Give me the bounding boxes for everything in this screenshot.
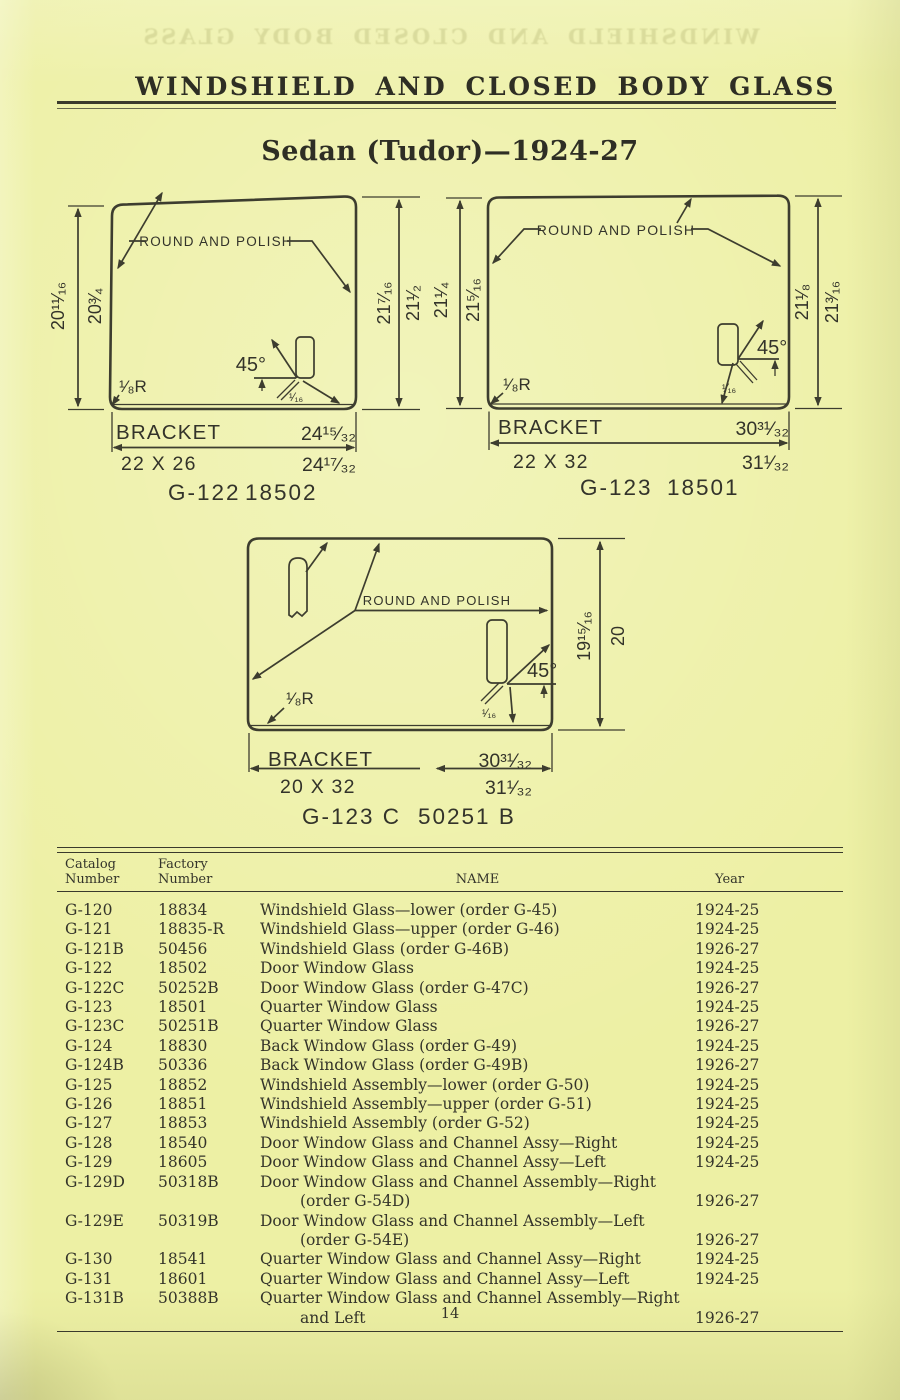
table-row: G-12718853Windshield Assembly (order G-5…: [65, 1114, 843, 1133]
cell-catalog-number: G-129: [65, 1153, 158, 1172]
cell-name: Door Window Glass and Channel Assembly—L…: [260, 1212, 695, 1231]
cell-name: (order G-54D): [260, 1192, 695, 1211]
cell-catalog-number: G-120: [65, 901, 158, 920]
bracket-label: BRACKET: [268, 748, 373, 771]
table-row: G-12218502Door Window Glass1924-25: [65, 959, 843, 978]
cell-year: 1924-25: [695, 1134, 843, 1153]
edge-thickness-label: ¹⁄₁₆: [289, 392, 304, 404]
cell-factory-number: 50318B: [158, 1173, 260, 1192]
table-row: G-122C50252BDoor Window Glass (order G-4…: [65, 979, 843, 998]
bracket-width: 30³¹⁄₃₂: [736, 418, 789, 440]
diagram-quarter-window-g123: 21¹⁄₄ 21⁵⁄₁₆ 21¹⁄₈ 21³⁄₁₆ ROUND AND POLI…: [431, 196, 842, 500]
cell-year: 1924-25: [695, 998, 843, 1017]
bracket-label: BRACKET: [498, 416, 603, 439]
corner-radius-label: ¹⁄₈R: [119, 377, 147, 396]
dim-right-outer: 21¹⁄₂: [403, 285, 423, 321]
round-polish-label: ROUND AND POLISH: [363, 593, 512, 608]
cell-catalog-number: G-121: [65, 920, 158, 939]
cell-name: Quarter Window Glass: [260, 998, 695, 1017]
table-row: G-12018834Windshield Glass—lower (order …: [65, 901, 843, 920]
page-number: 14: [0, 1306, 900, 1322]
cell-name: Windshield Glass—lower (order G-45): [260, 901, 695, 920]
scanned-catalog-page: WINDSHIELD AND CLOSED BODY GLASS WINDSHI…: [0, 0, 900, 1400]
glass-outline: [110, 197, 356, 409]
caption-catalog-number: G-123 C: [302, 804, 401, 829]
cell-name: Door Window Glass: [260, 959, 695, 978]
cell-name: Windshield Glass—upper (order G-46): [260, 920, 695, 939]
dim-right-inner: 21⁷⁄₁₆: [374, 282, 394, 325]
glass-size: 20 X 32: [280, 776, 356, 798]
cell-factory-number: 18601: [158, 1270, 260, 1289]
glass-diagrams-figure: 20¹¹⁄₁₆ 20³⁄₄ 21⁷⁄₁₆ 21¹⁄₂ ROUND AND POL…: [0, 185, 900, 835]
table-row: G-123C50251BQuarter Window Glass1926-27: [65, 1017, 843, 1036]
cell-year: 1924-25: [695, 1270, 843, 1289]
angle-label: 45°: [236, 354, 266, 376]
dim-left-inner: 20³⁄₄: [85, 288, 105, 324]
column-header-factory-number: Factory Number: [158, 858, 260, 887]
cell-catalog-number: G-124: [65, 1037, 158, 1056]
bracket-profile-large: [289, 558, 307, 617]
table-row: G-12318501Quarter Window Glass1924-25: [65, 998, 843, 1017]
caption-catalog-number: G-123: [580, 475, 653, 500]
dim-left-outer: 20¹¹⁄₁₆: [48, 282, 68, 330]
edge-thickness-label: ¹⁄₁₆: [482, 708, 497, 720]
cell-catalog-number: [65, 1231, 158, 1250]
section-title: Sedan (Tudor)—1924-27: [0, 136, 900, 167]
table-row: G-13118601Quarter Window Glass and Chann…: [65, 1270, 843, 1289]
glass-size: 22 X 26: [121, 453, 197, 475]
cell-factory-number: 18851: [158, 1095, 260, 1114]
cell-name: Windshield Assembly (order G-52): [260, 1114, 695, 1133]
header-rule: [57, 101, 836, 109]
cell-name: Windshield Assembly—upper (order G-51): [260, 1095, 695, 1114]
caption-factory-number: 18502: [245, 480, 318, 505]
cell-catalog-number: G-122C: [65, 979, 158, 998]
cell-year: 1926-27: [695, 940, 843, 959]
round-polish-label: ROUND AND POLISH: [537, 222, 695, 238]
cell-catalog-number: G-126: [65, 1095, 158, 1114]
cell-year: 1924-25: [695, 1250, 843, 1269]
cell-name: Back Window Glass (order G-49B): [260, 1056, 695, 1075]
cell-year: 1924-25: [695, 1037, 843, 1056]
table-row: G-121B50456Windshield Glass (order G-46B…: [65, 940, 843, 959]
column-header-catalog-number: Catalog Number: [65, 858, 158, 887]
cell-factory-number: 50319B: [158, 1212, 260, 1231]
cell-catalog-number: G-122: [65, 959, 158, 978]
showthrough-ghost-text: WINDSHIELD AND CLOSED BODY GLASS: [0, 24, 900, 49]
caption-factory-number: 50251 B: [418, 804, 516, 829]
angle-label: 45°: [757, 337, 787, 359]
cell-year: 1924-25: [695, 901, 843, 920]
cell-factory-number: [158, 1192, 260, 1211]
diagram-door-window-g122: 20¹¹⁄₁₆ 20³⁄₄ 21⁷⁄₁₆ 21¹⁄₂ ROUND AND POL…: [48, 193, 423, 505]
cell-catalog-number: G-123C: [65, 1017, 158, 1036]
cell-factory-number: 18540: [158, 1134, 260, 1153]
cell-name: Quarter Window Glass: [260, 1017, 695, 1036]
cell-name: Door Window Glass and Channel Assembly—R…: [260, 1173, 695, 1192]
cell-name: Windshield Assembly—lower (order G-50): [260, 1076, 695, 1095]
table-row: G-12418830Back Window Glass (order G-49)…: [65, 1037, 843, 1056]
cell-name: (order G-54E): [260, 1231, 695, 1250]
cell-factory-number: 18502: [158, 959, 260, 978]
cell-catalog-number: G-128: [65, 1134, 158, 1153]
cell-name: Windshield Glass (order G-46B): [260, 940, 695, 959]
glass-size: 22 X 32: [513, 451, 589, 473]
cell-year: 1926-27: [695, 1231, 843, 1250]
parts-table: Catalog Number Factory Number NAME Year …: [57, 847, 843, 1332]
dim-right-inner: 19¹⁵⁄₁₆: [574, 611, 594, 661]
table-row: G-129D50318BDoor Window Glass and Channe…: [65, 1173, 843, 1212]
cell-factory-number: [158, 1231, 260, 1250]
cell-factory-number: 18541: [158, 1250, 260, 1269]
cell-factory-number: 18835-R: [158, 920, 260, 939]
cell-name: Door Window Glass (order G-47C): [260, 979, 695, 998]
cell-year: 1924-25: [695, 1153, 843, 1172]
angle-label: 45°: [527, 660, 557, 682]
table-header-row: Catalog Number Factory Number NAME Year: [57, 853, 843, 891]
table-row: G-12818540Door Window Glass and Channel …: [65, 1134, 843, 1153]
cell-name: Door Window Glass and Channel Assy—Left: [260, 1153, 695, 1172]
cell-name: Door Window Glass and Channel Assy—Right: [260, 1134, 695, 1153]
cell-year: 1924-25: [695, 1076, 843, 1095]
cell-factory-number: 50456: [158, 940, 260, 959]
bracket-profile: [487, 620, 507, 683]
cell-year: [695, 1212, 843, 1231]
cell-year: [695, 1173, 843, 1192]
table-body: G-12018834Windshield Glass—lower (order …: [57, 892, 843, 1328]
column-header-name: NAME: [260, 873, 695, 888]
cell-factory-number: 50251B: [158, 1017, 260, 1036]
table-row: G-12918605Door Window Glass and Channel …: [65, 1153, 843, 1172]
cell-catalog-number: G-129E: [65, 1212, 158, 1231]
dim-right-outer: 21³⁄₁₆: [822, 281, 842, 323]
cell-catalog-number: G-125: [65, 1076, 158, 1095]
corner-radius-label: ¹⁄₈R: [503, 375, 531, 394]
bracket-label: BRACKET: [116, 421, 221, 444]
glass-width: 31¹⁄₃₂: [742, 452, 789, 474]
cell-year: 1926-27: [695, 979, 843, 998]
diagram-quarter-window-g123c: ROUND AND POLISH 19¹⁵⁄₁₆ 20 ¹⁄₈R 45° ¹⁄₁…: [248, 539, 628, 830]
table-row: G-129E50319BDoor Window Glass and Channe…: [65, 1212, 843, 1251]
cell-name: Quarter Window Glass and Channel Assy—Ri…: [260, 1250, 695, 1269]
cell-factory-number: 18605: [158, 1153, 260, 1172]
bracket-width: 24¹⁵⁄₃₂: [301, 423, 356, 445]
cell-year: 1924-25: [695, 959, 843, 978]
cell-year: 1926-27: [695, 1056, 843, 1075]
cell-factory-number: 50252B: [158, 979, 260, 998]
dim-right-outer: 20: [608, 626, 628, 646]
cell-catalog-number: [65, 1192, 158, 1211]
cell-factory-number: 18501: [158, 998, 260, 1017]
cell-name: Quarter Window Glass and Channel Assy—Le…: [260, 1270, 695, 1289]
table-row: G-12518852Windshield Assembly—lower (ord…: [65, 1076, 843, 1095]
cell-catalog-number: G-124B: [65, 1056, 158, 1075]
bracket-profile: [296, 337, 314, 378]
cell-year: 1924-25: [695, 1095, 843, 1114]
cell-catalog-number: G-129D: [65, 1173, 158, 1192]
cell-factory-number: 18834: [158, 901, 260, 920]
round-polish-label: ROUND AND POLISH: [139, 234, 292, 249]
table-row: G-12118835-RWindshield Glass—upper (orde…: [65, 920, 843, 939]
caption-factory-number: 18501: [667, 475, 740, 500]
glass-width: 31¹⁄₃₂: [485, 777, 532, 799]
caption-catalog-number: G-122: [168, 480, 241, 505]
cell-year: 1926-27: [695, 1017, 843, 1036]
cell-factory-number: 18830: [158, 1037, 260, 1056]
table-row: G-124B50336Back Window Glass (order G-49…: [65, 1056, 843, 1075]
cell-catalog-number: G-130: [65, 1250, 158, 1269]
cell-factory-number: 18853: [158, 1114, 260, 1133]
corner-radius-label: ¹⁄₈R: [286, 689, 314, 708]
cell-factory-number: 50336: [158, 1056, 260, 1075]
table-row: G-13018541Quarter Window Glass and Chann…: [65, 1250, 843, 1269]
table-bottom-rule: [57, 1331, 843, 1332]
page-title: WINDSHIELD AND CLOSED BODY GLASS: [135, 72, 836, 101]
bracket-profile: [718, 324, 738, 365]
cell-catalog-number: G-123: [65, 998, 158, 1017]
column-header-year: Year: [695, 873, 843, 888]
cell-year: 1924-25: [695, 1114, 843, 1133]
cell-year: 1926-27: [695, 1192, 843, 1211]
cell-name: Back Window Glass (order G-49): [260, 1037, 695, 1056]
cell-year: 1924-25: [695, 920, 843, 939]
cell-factory-number: 18852: [158, 1076, 260, 1095]
table-row: G-12618851Windshield Assembly—upper (ord…: [65, 1095, 843, 1114]
cell-catalog-number: G-131: [65, 1270, 158, 1289]
cell-catalog-number: G-127: [65, 1114, 158, 1133]
cell-catalog-number: G-121B: [65, 940, 158, 959]
dim-right-inner: 21¹⁄₈: [792, 284, 812, 320]
dim-left-inner: 21⁵⁄₁₆: [463, 278, 483, 322]
glass-width: 24¹⁷⁄₃₂: [302, 454, 356, 476]
dim-left-outer: 21¹⁄₄: [431, 282, 451, 318]
